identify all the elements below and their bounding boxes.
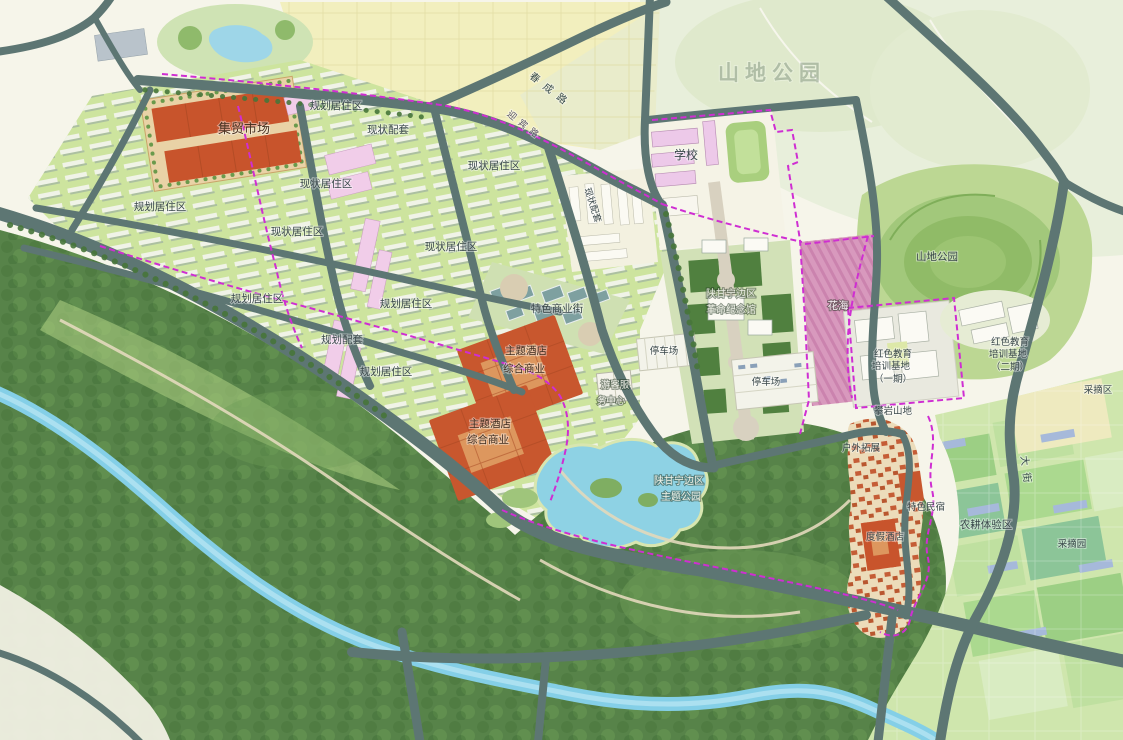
map-label: 综合商业 <box>467 433 509 446</box>
map-label: 培训基地 <box>872 360 911 372</box>
map-label: 红色教育 <box>874 348 912 360</box>
map-label: 主题酒店 <box>505 344 547 357</box>
map-label: 现状居住区 <box>300 177 353 190</box>
map-label: 山地公园 <box>718 61 826 85</box>
map-label: 现状居住区 <box>271 225 324 238</box>
map-label: 务中心 <box>597 395 626 407</box>
map-label: 主题公园 <box>661 491 701 503</box>
map-label: 革命纪念馆 <box>706 303 756 316</box>
map-label: 特色民宿 <box>907 501 945 513</box>
map-label: 山地公园 <box>916 250 958 263</box>
map-label: 度假酒店 <box>866 531 904 543</box>
map-label: 户外拓展 <box>842 442 881 454</box>
map-label: 现状居住区 <box>425 240 478 253</box>
map-label: 采摘园 <box>1058 538 1087 550</box>
map-label: 采摘区 <box>1084 384 1113 396</box>
map-label: 陕甘宁边区 <box>706 287 756 300</box>
map-label: 特色商业街 <box>531 302 584 315</box>
map-label: 集贸市场 <box>218 121 270 137</box>
map-label: 规划居住区 <box>380 297 433 310</box>
map-label: 规划居住区 <box>134 200 187 213</box>
map-label: 红色教育 <box>991 336 1029 348</box>
map-label: 规划配套 <box>321 333 363 346</box>
map-label: （二期） <box>991 361 1029 373</box>
map-label: 攀岩山地 <box>874 405 913 417</box>
map-label: 培训基地 <box>989 348 1028 360</box>
map-label: 综合商业 <box>503 362 545 375</box>
map-label: 学校 <box>674 147 698 162</box>
map-label: 现状配套 <box>367 123 409 136</box>
map-label: 农耕体验区 <box>960 518 1013 531</box>
master-plan-map: 集贸市场规划居住区现状配套现状居住区现状居住区规划居住区现状居住区现状居住区规划… <box>0 0 1123 740</box>
plan-canvas: 集贸市场规划居住区现状配套现状居住区现状居住区规划居住区现状居住区现状居住区规划… <box>0 0 1123 740</box>
map-label: 现状居住区 <box>468 159 521 172</box>
map-label: 游客服 <box>601 379 630 391</box>
map-label: 停车场 <box>752 376 781 388</box>
map-label: （一期） <box>874 373 912 385</box>
map-label: 主题酒店 <box>469 417 511 430</box>
map-label: 花海 <box>828 299 849 312</box>
map-label: 陕甘宁边区 <box>654 474 704 487</box>
map-label: 规划居住区 <box>231 292 284 305</box>
map-label: 规划居住区 <box>360 365 413 378</box>
map-label: 规划居住区 <box>310 99 363 112</box>
map-label: 停车场 <box>650 345 679 357</box>
